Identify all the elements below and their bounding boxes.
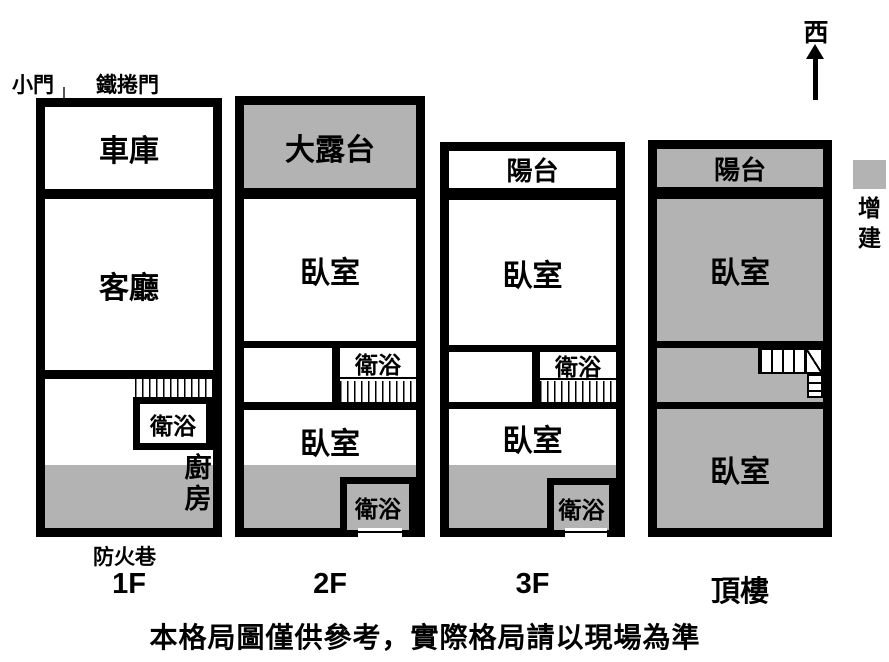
floor-3f: 陽台 臥室 衛浴 臥室 衛浴: [440, 142, 625, 537]
stairs-upper-run: [758, 348, 807, 374]
floor-label-roof: 頂樓: [648, 568, 832, 610]
wall: [449, 188, 616, 200]
room-garage: 車庫: [45, 107, 213, 189]
room-bedroom-front-roof: 臥室: [657, 199, 823, 341]
room-bedroom-front-3f: 臥室: [449, 200, 616, 345]
room-balcony-roof: 陽台: [657, 149, 823, 187]
legend-label: 增 建: [853, 193, 886, 253]
floor-label-3f: 3F: [440, 568, 625, 601]
room-bathroom-mid-3f: 衛浴: [540, 352, 616, 380]
room-terrace: 大露台: [244, 105, 416, 188]
floor-1f: 車庫 客廳 衛浴 廚 房: [36, 98, 222, 537]
stairs-hatch: [540, 381, 616, 402]
floor-label-2f: 2F: [235, 568, 425, 601]
wall: [45, 370, 213, 379]
room-kitchen: 廚 房: [183, 453, 213, 515]
floor-roof: 陽台 臥室 臥室: [648, 140, 832, 537]
stairs-corner: [807, 348, 823, 374]
roller-door-label: 鐵捲門: [96, 69, 159, 99]
wall: [657, 187, 823, 199]
stairs-lower-run: [807, 374, 823, 398]
room-balcony-3f: 陽台: [449, 151, 616, 188]
room-bedroom-rear-2f: 臥室: [244, 410, 416, 472]
legend-label-line1: 增: [858, 193, 881, 223]
legend-label-line2: 建: [858, 223, 881, 253]
wall: [657, 341, 823, 348]
room-living: 客廳: [45, 199, 213, 370]
door-gap: [565, 528, 607, 537]
legend-swatch: [853, 160, 886, 189]
wall: [244, 402, 416, 410]
kitchen-char-2: 房: [185, 484, 212, 515]
floorplan-diagram: 小門 鐵捲門 西 增 建 車庫 客廳 衛浴 廚 房 大露台 臥室 衛浴 臥室 衛…: [0, 0, 889, 662]
floor-label-1f: 1F: [36, 568, 222, 601]
wall: [657, 402, 823, 409]
kitchen-char-1: 廚: [185, 453, 212, 484]
room-bathroom-1f: 衛浴: [133, 397, 213, 450]
room-bedroom-rear-roof: 臥室: [657, 409, 823, 528]
small-door-label: 小門: [12, 69, 54, 99]
wall: [332, 348, 340, 402]
wall: [45, 189, 213, 199]
floor-2f: 大露台 臥室 衛浴 臥室 衛浴: [235, 96, 425, 537]
disclaimer-text: 本格局圖僅供參考，實際格局請以現場為準: [0, 616, 850, 656]
door-gap: [358, 528, 402, 537]
room-bedroom-front-2f: 臥室: [244, 199, 416, 341]
room-bathroom-mid-2f: 衛浴: [340, 348, 416, 379]
stairs-hatch: [340, 381, 416, 402]
wall: [244, 188, 416, 199]
stairs-hatch: [135, 379, 213, 399]
wall: [449, 402, 616, 409]
room-bedroom-rear-3f: 臥室: [449, 409, 616, 467]
compass-arrow-shaft: [813, 57, 818, 100]
fire-lane-label: 防火巷: [93, 541, 156, 571]
wall: [532, 352, 540, 402]
